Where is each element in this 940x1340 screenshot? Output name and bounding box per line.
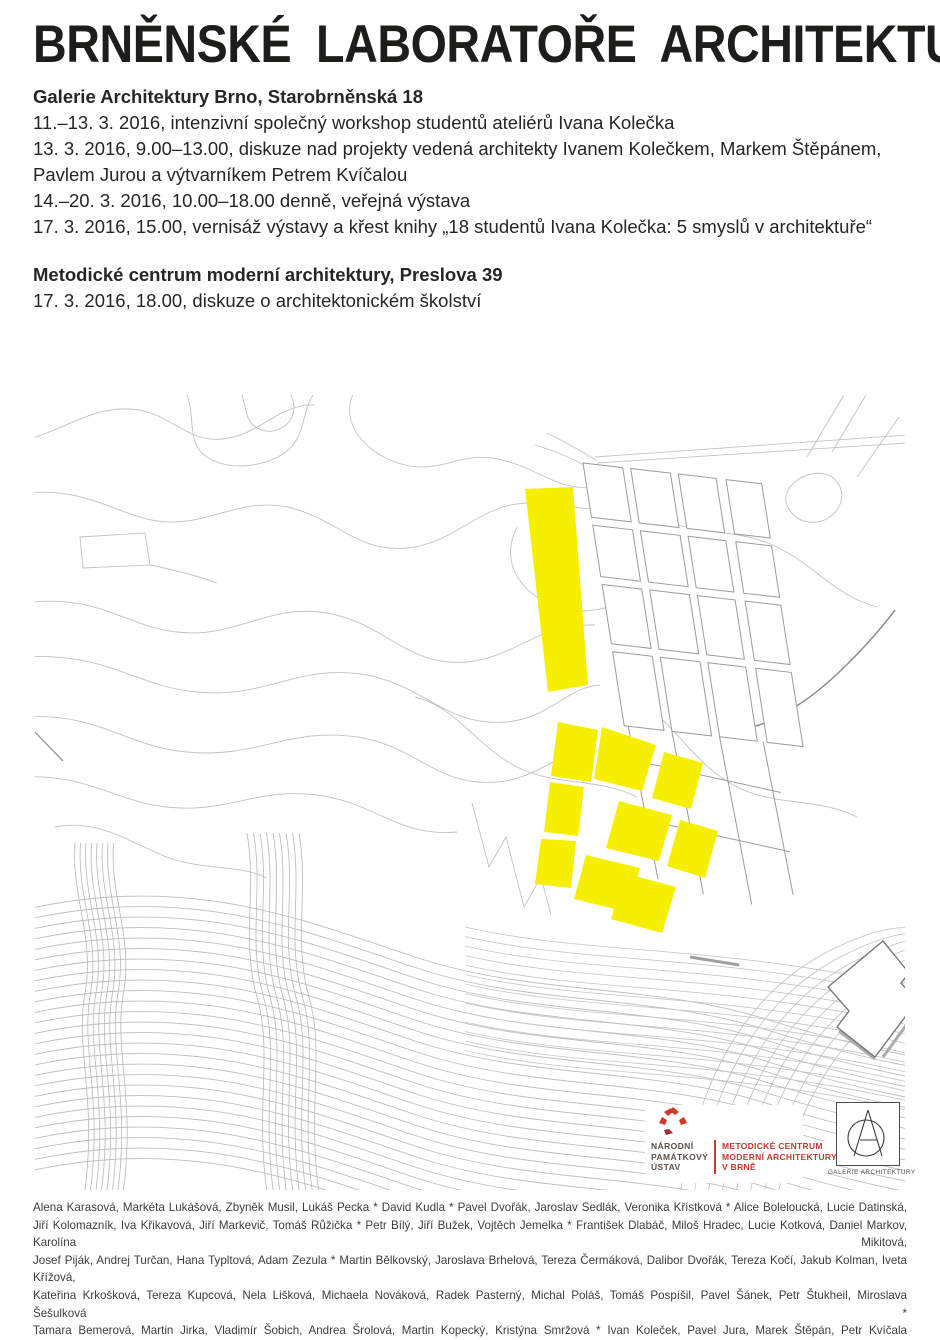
participants-line: Tamara Bemerová, Martin Jirka, Vladimír … [33,1322,907,1340]
contour-line [465,1013,905,1083]
mcma-logo-text: METODICKÉ CENTRUM MODERNÍ ARCHITEKTURY V… [722,1141,837,1173]
topographic-map [35,395,905,1190]
event-line: 17. 3. 2016, 15.00, vernisáž výstavy a k… [33,214,923,240]
galerie-architektury-logo [836,1102,900,1166]
city-block [736,542,780,598]
participants-line: Jiří Kolomazník, Iva Křikavová, Jiří Mar… [33,1217,907,1252]
highlight-block [652,752,703,809]
npu-rosette-icon [651,1105,695,1137]
npu-line: NÁRODNÍ [651,1141,708,1152]
highlight-block [594,727,656,791]
mcma-line: MODERNÍ ARCHITEKTURY [722,1152,837,1163]
participants-line: Josef Piják, Andrej Turčan, Hana Typltov… [33,1252,907,1287]
city-block [631,469,679,528]
npu-line: ÚSTAV [651,1162,708,1173]
contour-line [35,896,905,1063]
event-line: Pavlem Jurou a výtvarníkem Petrem Kvíčal… [33,162,923,188]
logo-divider [714,1140,716,1174]
participants-line: Kateřina Krkošková, Tereza Kupcová, Nela… [33,1287,907,1322]
city-block [583,463,631,522]
event-line: 14.–20. 3. 2016, 10.00–18.00 denně, veře… [33,188,923,214]
highlight-block [551,722,598,782]
mcma-line: METODICKÉ CENTRUM [722,1141,837,1152]
castle-outline [828,941,905,1059]
participants-line: Alena Karasová, Markéta Lukášová, Zbyněk… [33,1199,907,1217]
event-line: 17. 3. 2016, 18.00, diskuze o architekto… [33,288,923,314]
event-info: Galerie Architektury Brno, Starobrněnská… [33,84,923,314]
highlight-block [544,782,584,836]
city-block [678,474,724,533]
street-line [763,742,793,895]
highlight-block [667,820,718,878]
city-block [650,590,699,654]
venue-heading-galerie: Galerie Architektury Brno, Starobrněnská… [33,84,923,110]
participants-list: Alena Karasová, Markéta Lukášová, Zbyněk… [33,1199,907,1340]
contour-line [465,1041,905,1111]
city-block [613,652,664,731]
street-line [720,737,752,905]
npu-line: PAMÁTKOVÝ [651,1152,708,1163]
city-block [593,525,641,581]
highlight-block [525,487,588,692]
path-line [35,727,63,761]
contour-line [35,917,905,1084]
npu-logo-text: NÁRODNÍ PAMÁTKOVÝ ÚSTAV [651,1141,708,1173]
poster-title-text: BRNĚNSKÉ LABORATOŘE ARCHITEKTURY [33,16,940,74]
city-block [745,601,790,664]
mcma-line: V BRNĚ [722,1162,837,1173]
poster-page: { "poster": { "title": "BRNĚNSKÉ LABORAT… [0,0,940,1280]
ga-logo-label: GALERIE ARCHITEKTURY [828,1169,908,1176]
city-block [708,663,757,742]
event-line: 13. 3. 2016, 9.00–13.00, diskuze nad pro… [33,136,923,162]
city-block [697,596,744,660]
ga-monogram-icon [837,1103,899,1165]
event-line: 11.–13. 3. 2016, intenzivní společný wor… [33,110,923,136]
city-block [688,536,734,592]
contour-line [75,843,89,1190]
city-block [640,531,688,587]
site-map [35,395,905,1190]
city-block [756,668,803,746]
city-block [602,585,651,649]
city-block [726,480,770,538]
highlight-block [606,801,672,861]
city-block [660,657,711,736]
venue-heading-metodicke-centrum: Metodické centrum moderní architektury, … [33,262,923,288]
highlight-block [535,839,576,888]
poster-title: BRNĚNSKÉ LABORATOŘE ARCHITEKTURY [33,16,940,74]
